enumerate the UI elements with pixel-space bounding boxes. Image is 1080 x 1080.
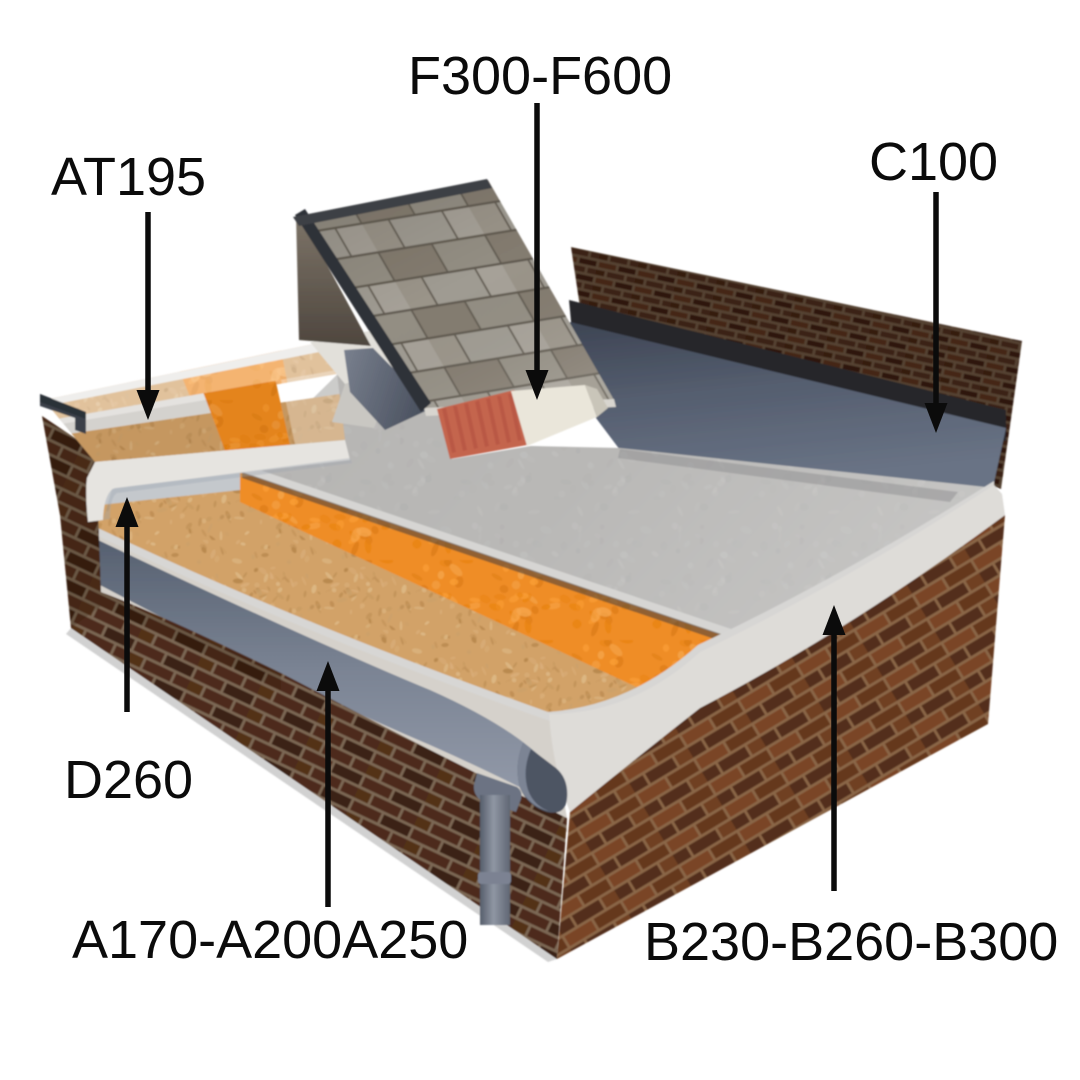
svg-text:D260: D260 [64, 750, 193, 810]
svg-text:C100: C100 [869, 132, 998, 192]
svg-text:F300-F600: F300-F600 [408, 46, 672, 106]
svg-text:AT195: AT195 [51, 147, 206, 207]
svg-text:B230-B260-B300: B230-B260-B300 [644, 912, 1058, 972]
svg-text:A170-A200A250: A170-A200A250 [72, 910, 468, 970]
